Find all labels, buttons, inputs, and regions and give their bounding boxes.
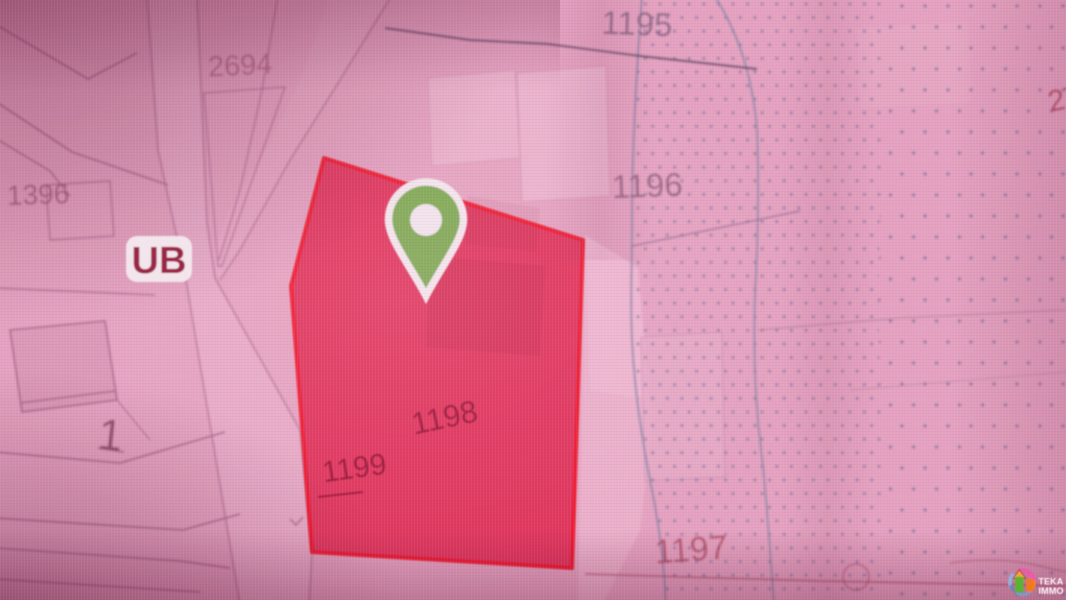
svg-text:UB: UB [132,240,187,282]
svg-text:TEKA: TEKA [1039,577,1064,587]
svg-text:IMMO: IMMO [1039,586,1064,596]
